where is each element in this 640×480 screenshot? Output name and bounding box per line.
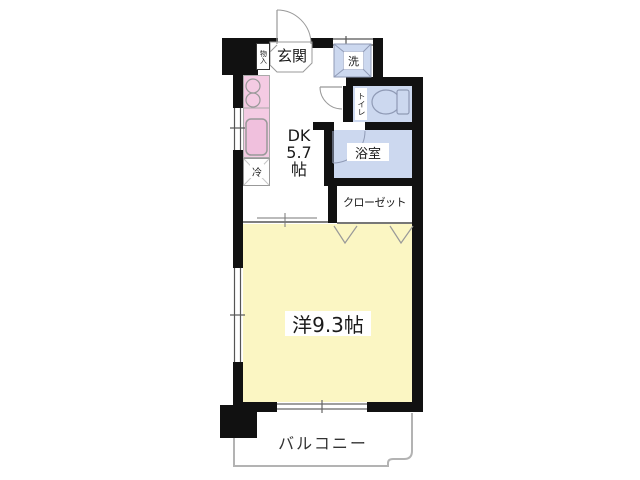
- toilet-door-icon: [320, 87, 342, 109]
- dk-label-line1: DK: [277, 127, 321, 144]
- kitchen-counter: [243, 75, 270, 158]
- wall-bottom-right: [367, 402, 412, 412]
- dk-label-line3: 帖: [277, 161, 321, 178]
- wall-pillar-bottom-left: [220, 405, 257, 438]
- wall-kitchen-left: [233, 75, 243, 108]
- wall-right-outer: [412, 77, 423, 412]
- western-room-label: 洋9.3帖: [285, 311, 371, 336]
- wall-pillar-top-left: [222, 38, 258, 75]
- wall-toilet-left: [343, 86, 353, 122]
- storage-label: 物入: [260, 50, 267, 64]
- floor-plan: 物入 玄関 洗 トイレ 浴室 DK 5.7 帖 冷 クローゼット 洋9.3帖 バ…: [0, 0, 640, 480]
- genkan-label: 玄関: [272, 46, 312, 64]
- dk-label: DK 5.7 帖: [277, 127, 321, 178]
- balcony-label: バルコニー: [268, 432, 378, 452]
- wall-closet-left: [328, 186, 337, 223]
- closet-label: クローゼット: [337, 194, 412, 210]
- fridge-label: 冷: [250, 164, 264, 178]
- toilet-label-strip: トイレ: [355, 88, 367, 120]
- laundry-label: 洗: [344, 52, 363, 69]
- window-top: [333, 36, 373, 48]
- wall-bath-top-right: [365, 122, 412, 130]
- wall-top-mid: [311, 38, 333, 48]
- storage-label-box: 物入: [256, 43, 270, 70]
- toilet-label: トイレ: [357, 92, 365, 116]
- wall-bath-left: [324, 122, 334, 186]
- dk-label-line2: 5.7: [277, 144, 321, 161]
- entrance-door-icon: [277, 10, 311, 44]
- wall-bath-bottom: [324, 178, 412, 186]
- wall-left-mid: [233, 150, 243, 268]
- bathroom-label: 浴室: [347, 143, 389, 161]
